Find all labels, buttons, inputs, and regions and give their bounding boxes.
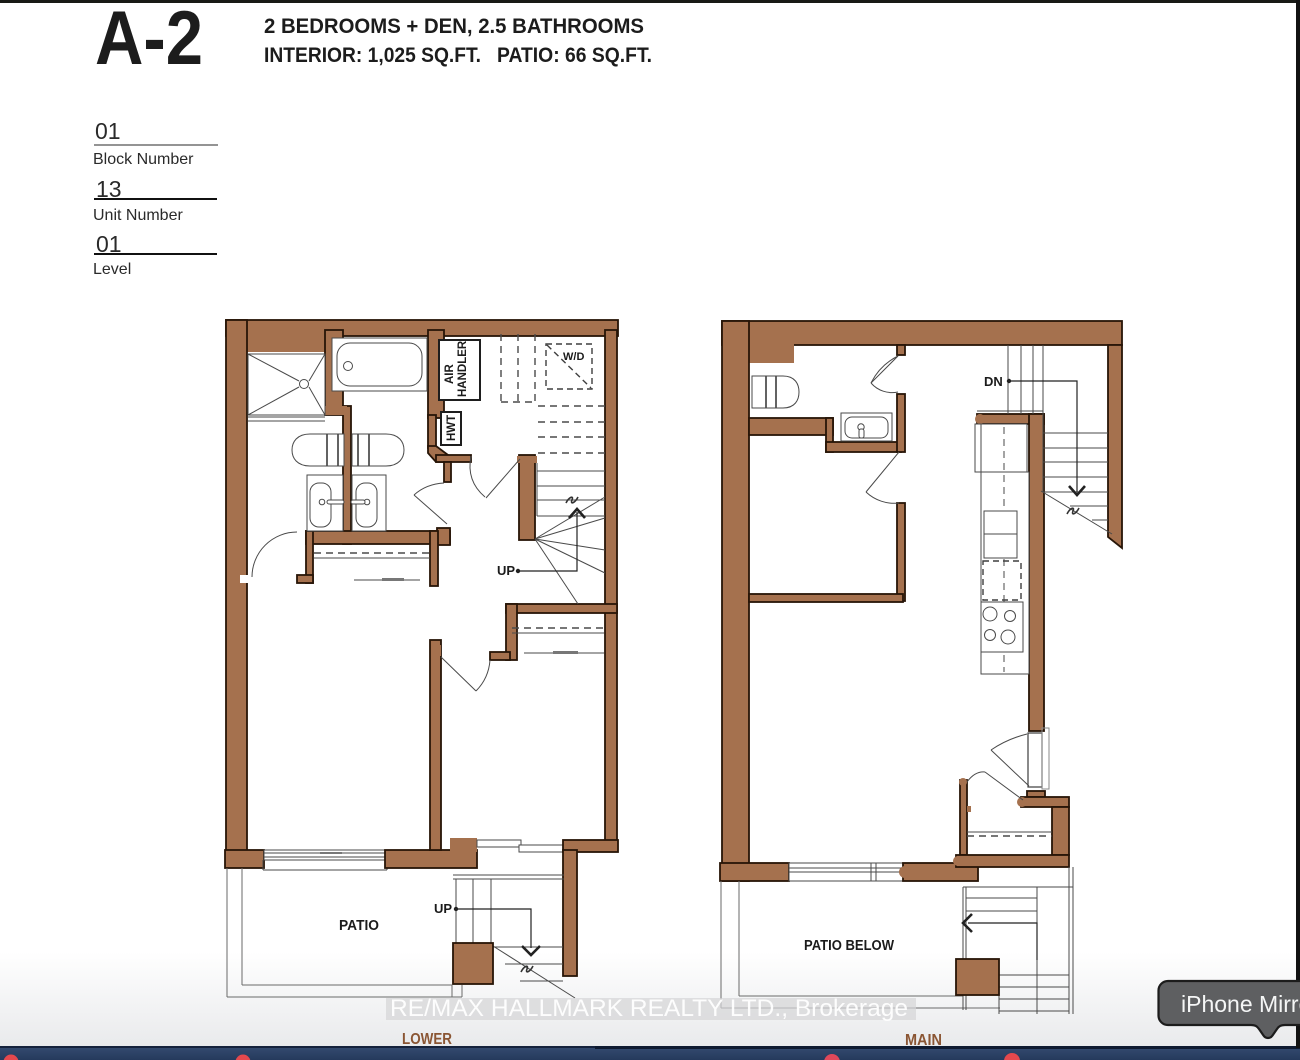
svg-text:A-2: A-2 — [95, 0, 203, 81]
svg-text:PATIO: 66 SQ.FT.: PATIO: 66 SQ.FT. — [497, 43, 652, 67]
svg-text:Block Number: Block Number — [93, 151, 194, 168]
svg-text:HWT: HWT — [446, 415, 458, 441]
svg-text:LOWER: LOWER — [402, 1031, 452, 1048]
svg-text:Unit Number: Unit Number — [93, 207, 183, 224]
svg-text:AIR: AIR — [444, 364, 456, 385]
svg-text:UP: UP — [434, 901, 452, 916]
svg-text:iPhone Mirro: iPhone Mirro — [1181, 991, 1300, 1017]
svg-text:W/D: W/D — [563, 351, 584, 363]
svg-text:Level: Level — [93, 261, 131, 278]
svg-text:UP: UP — [497, 563, 515, 578]
svg-text:PATIO: PATIO — [339, 918, 379, 934]
svg-text:PATIO BELOW: PATIO BELOW — [804, 938, 894, 954]
svg-text:2 BEDROOMS + DEN, 2.5 BATHROOM: 2 BEDROOMS + DEN, 2.5 BATHROOMS — [264, 14, 644, 38]
svg-text:DN: DN — [984, 374, 1003, 389]
svg-text:01: 01 — [95, 118, 121, 144]
svg-text:INTERIOR: 1,025 SQ.FT.: INTERIOR: 1,025 SQ.FT. — [264, 43, 481, 67]
svg-text:HANDLER: HANDLER — [457, 340, 469, 397]
svg-text:RE/MAX HALLMARK REALTY LTD., B: RE/MAX HALLMARK REALTY LTD., Brokerage — [390, 995, 908, 1022]
